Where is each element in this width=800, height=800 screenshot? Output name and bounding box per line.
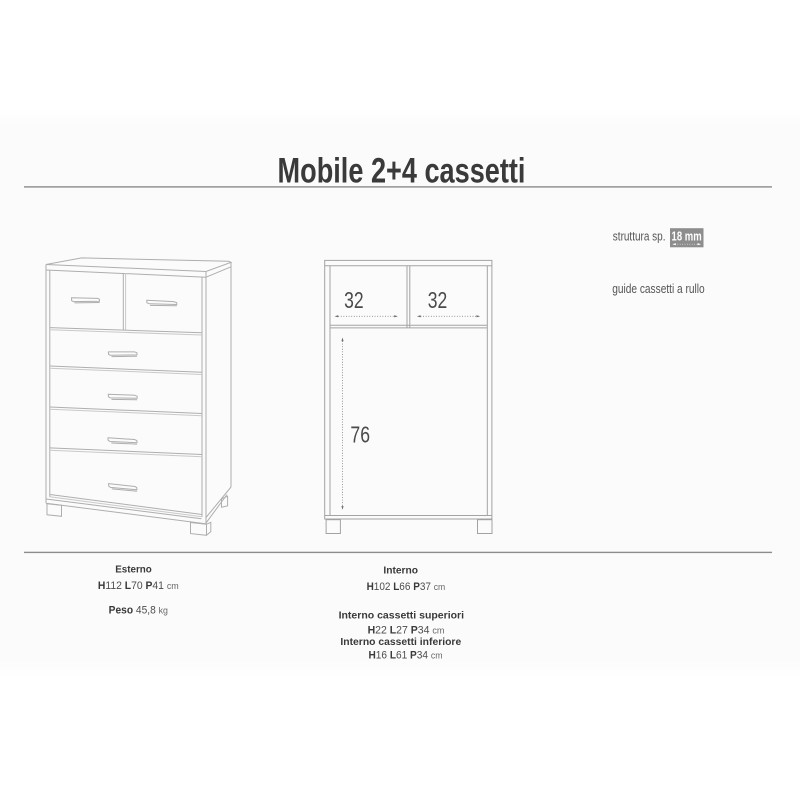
- svg-text:Mobile 2+4 cassetti: Mobile 2+4 cassetti: [278, 150, 526, 190]
- svg-text:H102 L66 P37 cm: H102 L66 P37 cm: [367, 581, 446, 594]
- svg-text:18 mm: 18 mm: [672, 230, 702, 244]
- svg-text:Interno cassetti inferiore: Interno cassetti inferiore: [340, 637, 461, 648]
- svg-text:struttura sp.: struttura sp.: [613, 230, 666, 243]
- svg-text:H22 L27 P34 cm: H22 L27 P34 cm: [368, 624, 445, 636]
- svg-text:76: 76: [350, 422, 370, 448]
- svg-text:Peso 45,8 kg: Peso 45,8 kg: [109, 604, 168, 616]
- svg-text:32: 32: [344, 288, 363, 314]
- svg-text:Interno cassetti superiori: Interno cassetti superiori: [339, 610, 465, 622]
- svg-text:Esterno: Esterno: [115, 564, 152, 575]
- svg-text:32: 32: [428, 288, 447, 314]
- svg-text:H112 L70 P41 cm: H112 L70 P41 cm: [98, 580, 179, 592]
- svg-text:H16 L61 P34 cm: H16 L61 P34 cm: [369, 649, 443, 661]
- svg-text:Interno: Interno: [383, 565, 418, 576]
- svg-text:guide cassetti a rullo: guide cassetti a rullo: [612, 283, 704, 296]
